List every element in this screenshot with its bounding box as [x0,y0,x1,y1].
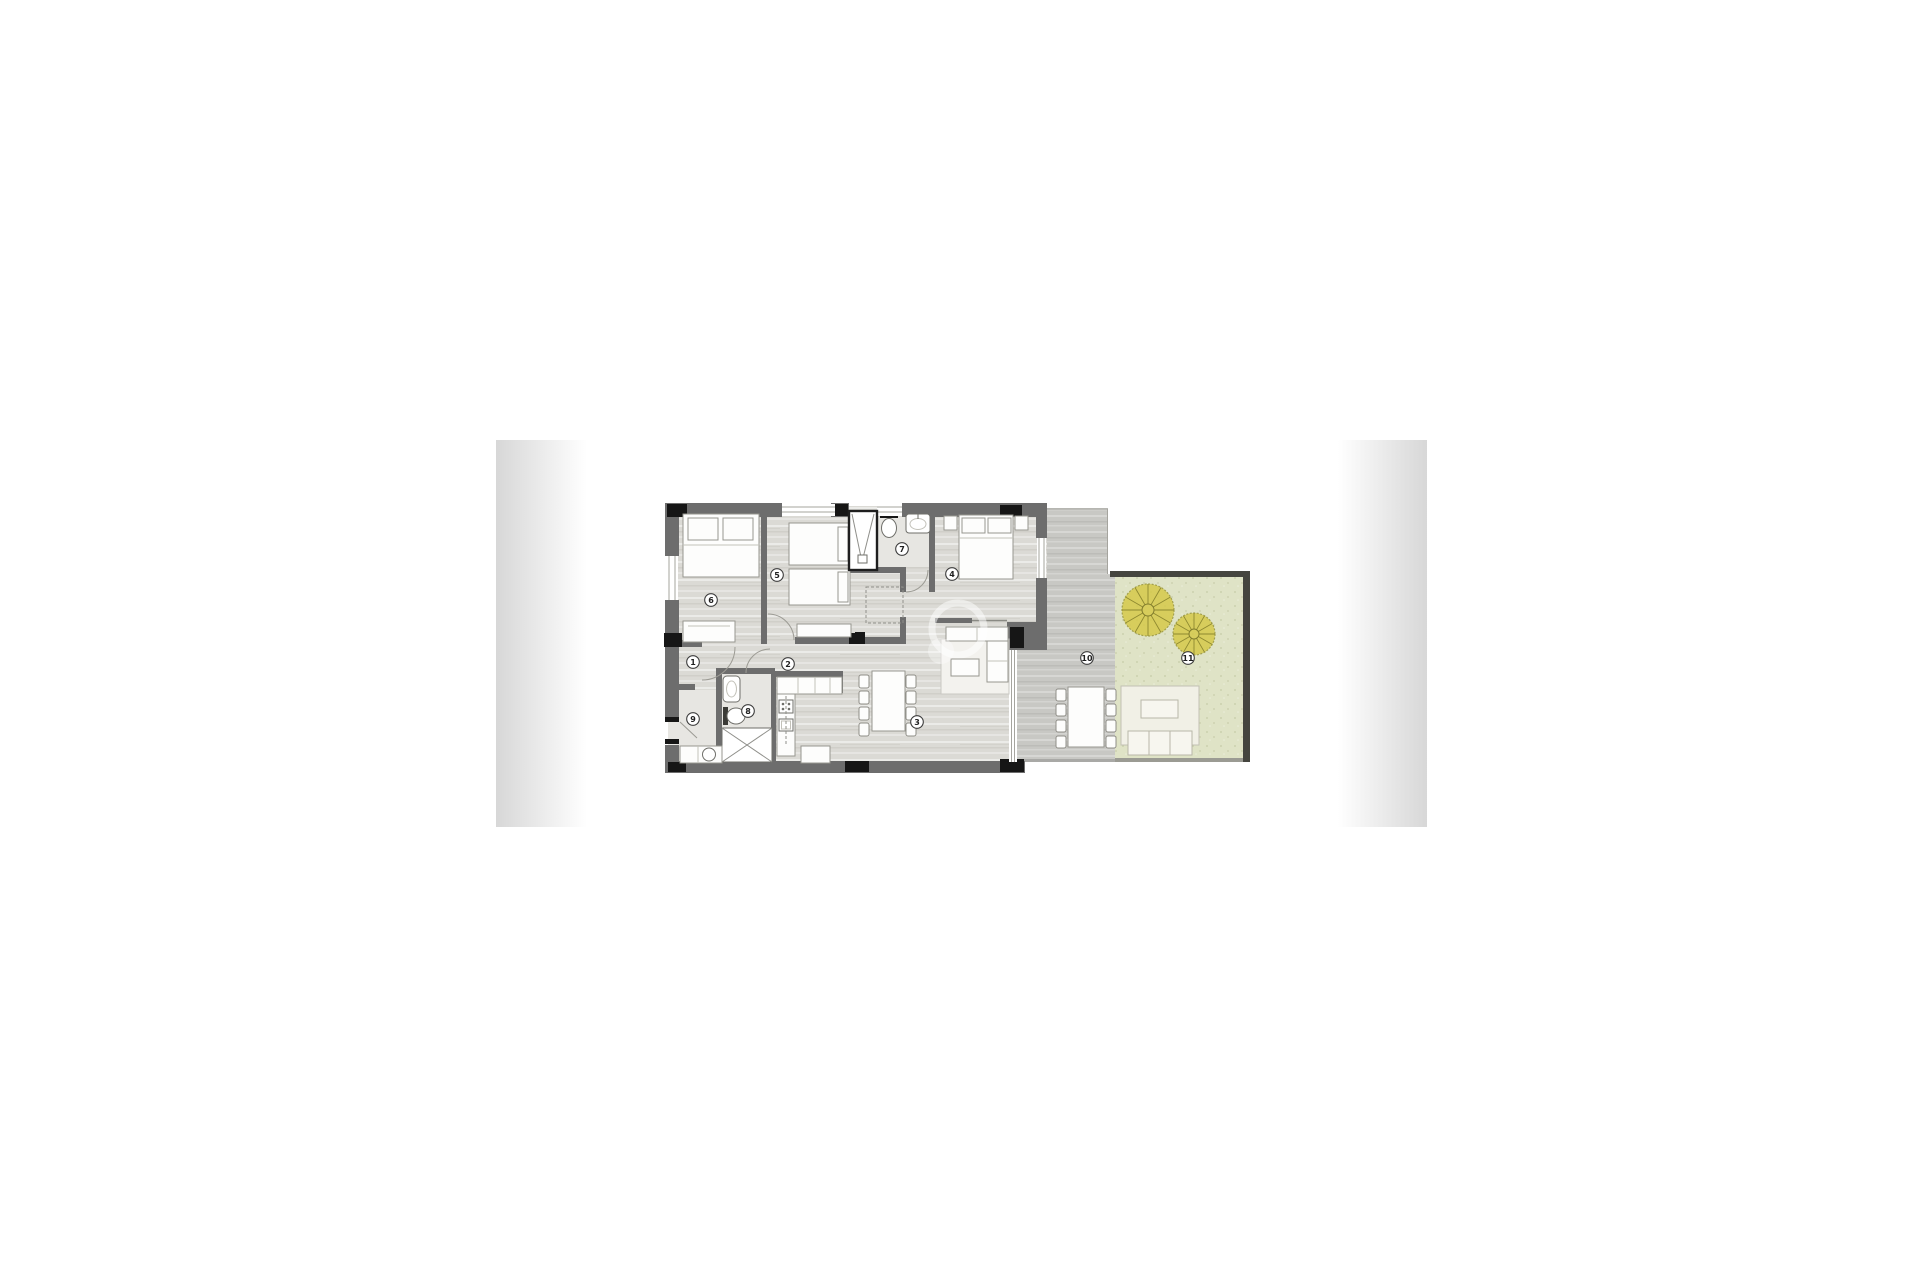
room-label-5: 5 [771,569,784,582]
room-label-6: 6 [705,594,718,607]
room-label-8: 8 [742,705,755,718]
nightstand-icon [944,516,957,530]
chair-icon [859,691,869,704]
room-label-2: 2 [782,658,795,671]
pillow-icon [838,527,848,561]
pillow-icon [723,518,753,540]
pillow-icon [988,518,1011,533]
outdoor-coffee-table-icon [1141,700,1178,718]
nightstand-icon [1015,516,1028,530]
garden-furniture [1121,686,1199,755]
dining-furniture [859,671,916,736]
kitchen-counter-icon [777,677,842,694]
pillow-icon [838,572,848,602]
room-label-11: 11 [1182,652,1195,665]
dresser-icon [683,621,735,642]
chair-icon [1056,736,1066,748]
coffee-table-icon [951,659,979,676]
pillow-icon [962,518,985,533]
toilet-icon [882,519,897,538]
washing-machine-icon [703,748,716,761]
chair-icon [1056,704,1066,716]
kitchen-island-icon [801,746,830,763]
svg-text:1: 1 [690,658,696,667]
chair-icon [1106,720,1116,732]
room-label-10: 10 [1081,652,1094,665]
room-label-1: 1 [687,656,700,669]
chair-icon [1056,689,1066,701]
listing-photo-viewer: 1 2 3 4 5 6 7 8 [0,0,1920,1280]
room-label-3: 3 [911,716,924,729]
room-label-9: 9 [687,713,700,726]
chair-icon [1106,689,1116,701]
room-label-7: 7 [896,543,909,556]
svg-text:10: 10 [1081,654,1093,663]
outdoor-sofa-icon [1128,731,1192,755]
chair-icon [859,675,869,688]
chair-icon [1106,736,1116,748]
chair-icon [859,707,869,720]
chair-icon [1056,720,1066,732]
outdoor-table-icon [1068,687,1104,747]
floorplan-image[interactable]: 1 2 3 4 5 6 7 8 [660,490,1260,790]
closet-icon [797,624,851,637]
svg-text:9: 9 [690,715,696,724]
terrace-bottom-edge [1016,759,1116,762]
chair-icon [1106,704,1116,716]
dining-table-icon [872,671,905,731]
previous-image-edge-gradient [496,440,587,827]
living-room-furniture [941,627,1009,694]
chair-icon [906,691,916,704]
next-image-edge-gradient [1338,440,1427,827]
svg-text:4: 4 [949,570,955,579]
svg-text:11: 11 [1182,654,1194,663]
sink-icon [723,676,740,702]
chair-icon [859,723,869,736]
garden-bottom-edge [1115,758,1250,762]
tree-icon [1122,584,1174,636]
svg-text:6: 6 [708,596,714,605]
room-label-4: 4 [946,568,959,581]
svg-text:8: 8 [745,707,751,716]
svg-text:5: 5 [774,571,780,580]
tree-icon [1173,613,1215,655]
pillow-icon [688,518,718,540]
chair-icon [906,675,916,688]
svg-text:3: 3 [914,718,920,727]
svg-text:2: 2 [785,660,791,669]
laundry-9-fixtures [680,746,722,763]
svg-text:7: 7 [899,545,905,554]
